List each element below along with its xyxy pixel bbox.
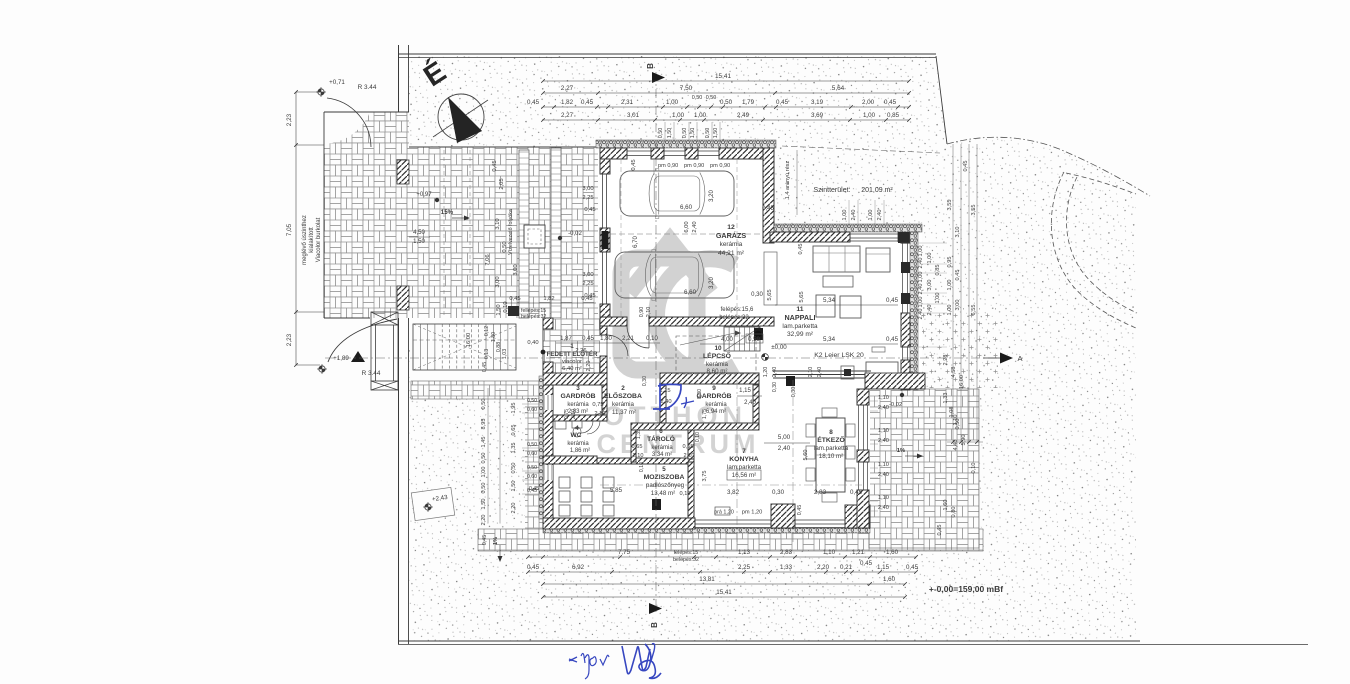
- svg-text:0,90: 0,90: [639, 307, 645, 318]
- svg-text:0,30: 0,30: [772, 489, 785, 496]
- svg-text:kerámia: kerámia: [651, 445, 673, 451]
- svg-text:2,40: 2,40: [660, 399, 671, 405]
- svg-text:2,40: 2,40: [878, 405, 889, 411]
- svg-text:13,81: 13,81: [699, 576, 715, 583]
- svg-text:NAPPALI: NAPPALI: [784, 313, 815, 322]
- svg-text:0,10: 0,10: [639, 462, 645, 472]
- svg-text:3,00: 3,00: [513, 264, 519, 275]
- svg-text:0,45: 0,45: [884, 99, 897, 106]
- svg-text:2,20: 2,20: [586, 361, 592, 372]
- svg-text:1,82: 1,82: [543, 296, 554, 302]
- svg-text:0,30: 0,30: [642, 376, 648, 386]
- svg-text:FEDETT ELŐTÉR: FEDETT ELŐTÉR: [547, 350, 598, 358]
- svg-text:B: B: [650, 622, 659, 628]
- svg-text:1,50: 1,50: [511, 481, 517, 492]
- svg-text:kialakított: kialakított: [309, 227, 315, 253]
- svg-text:15%: 15%: [441, 209, 454, 216]
- svg-text:3,20: 3,20: [709, 277, 715, 289]
- svg-text:1,60: 1,60: [886, 549, 899, 556]
- svg-text:6,60: 6,60: [680, 204, 693, 211]
- svg-text:0,10: 0,10: [971, 463, 977, 474]
- svg-text:0,50: 0,50: [527, 465, 537, 471]
- svg-text:0,45: 0,45: [509, 296, 520, 302]
- svg-text:0,45: 0,45: [762, 206, 774, 212]
- svg-text:0,60: 0,60: [527, 407, 537, 413]
- svg-text:0,45: 0,45: [906, 564, 919, 571]
- svg-text:R 3.44: R 3.44: [362, 370, 381, 377]
- svg-text:1,10: 1,10: [878, 495, 889, 501]
- svg-text:ELŐSZOBA: ELŐSZOBA: [604, 391, 642, 400]
- svg-text:0,80: 0,80: [951, 507, 957, 518]
- svg-text:6,70: 6,70: [633, 236, 639, 248]
- svg-text:LÉPCSŐ: LÉPCSŐ: [703, 351, 731, 360]
- svg-text:2,40: 2,40: [817, 367, 823, 378]
- svg-text:0,60: 0,60: [527, 474, 537, 480]
- svg-text:0,45: 0,45: [482, 362, 488, 372]
- svg-text:1,00: 1,00: [918, 272, 924, 283]
- svg-text:felépés:15,6: felépés:15,6: [721, 307, 754, 313]
- svg-text:2: 2: [621, 385, 625, 392]
- svg-text:2,40: 2,40: [878, 505, 889, 511]
- svg-text:1,33: 1,33: [943, 393, 949, 404]
- svg-text:1,10: 1,10: [823, 549, 836, 556]
- svg-text:1,20: 1,20: [763, 367, 769, 378]
- svg-text:2,40: 2,40: [918, 309, 924, 320]
- svg-text:2,10: 2,10: [684, 453, 695, 459]
- svg-text:0,45: 0,45: [584, 293, 595, 299]
- svg-text:5,60: 5,60: [803, 450, 809, 461]
- svg-text:32,99 m²: 32,99 m²: [787, 331, 814, 338]
- svg-text:6,00: 6,00: [684, 221, 690, 232]
- svg-text:lam.parketta: lam.parketta: [814, 445, 849, 452]
- svg-text:TÁROLÓ: TÁROLÓ: [647, 434, 675, 443]
- svg-text:2,25: 2,25: [738, 564, 751, 571]
- svg-text:12: 12: [727, 224, 735, 231]
- svg-text:5,90: 5,90: [961, 435, 967, 446]
- svg-text:11,37 m²: 11,37 m²: [612, 409, 636, 416]
- svg-text:1,45: 1,45: [481, 437, 487, 448]
- svg-text:1,03: 1,03: [502, 349, 508, 359]
- svg-text:0,12: 0,12: [484, 326, 490, 336]
- svg-text:1%: 1%: [897, 448, 905, 454]
- svg-text:5,65: 5,65: [767, 289, 773, 300]
- svg-text:1,60: 1,60: [883, 576, 896, 583]
- svg-text:1,10: 1,10: [878, 462, 889, 468]
- svg-text:3,55: 3,55: [947, 200, 953, 211]
- svg-text:0,50: 0,50: [527, 442, 537, 448]
- svg-text:0,50: 0,50: [481, 399, 487, 410]
- svg-text:0,45: 0,45: [963, 161, 969, 172]
- svg-text:0,45: 0,45: [798, 244, 804, 255]
- svg-text:-0,02: -0,02: [568, 231, 582, 237]
- svg-text:2,40: 2,40: [778, 445, 791, 452]
- svg-text:4,58: 4,58: [951, 367, 957, 378]
- svg-text:2,40: 2,40: [878, 438, 889, 444]
- svg-text:1,00: 1,00: [918, 246, 924, 257]
- svg-text:0,45: 0,45: [631, 159, 637, 170]
- svg-text:3,00: 3,00: [582, 272, 593, 278]
- svg-text:2,05: 2,05: [499, 178, 505, 189]
- svg-text:0,10: 0,10: [646, 336, 658, 342]
- svg-text:B: B: [646, 63, 655, 69]
- svg-text:1,15: 1,15: [659, 388, 670, 394]
- svg-text:0,50: 0,50: [481, 453, 487, 464]
- svg-text:2,27: 2,27: [561, 85, 574, 92]
- svg-text:2,10: 2,10: [808, 367, 814, 378]
- svg-text:1,15: 1,15: [739, 388, 751, 394]
- svg-text:1,00: 1,00: [927, 253, 933, 264]
- svg-text:0,10: 0,10: [680, 491, 691, 497]
- svg-text:0,30: 0,30: [697, 389, 703, 399]
- svg-text:Vízelvezető folyóka: Vízelvezető folyóka: [508, 209, 514, 255]
- svg-text:0,30: 0,30: [791, 387, 797, 398]
- svg-text:16,56 m²: 16,56 m²: [732, 472, 756, 479]
- svg-text:2,00: 2,00: [862, 99, 875, 106]
- svg-text:+0,97: +0,97: [416, 192, 432, 198]
- svg-text:3,00: 3,00: [582, 186, 593, 192]
- svg-text:0,75: 0,75: [564, 409, 570, 419]
- svg-text:kerámia: kerámia: [567, 402, 589, 408]
- svg-text:A: A: [1017, 354, 1022, 363]
- svg-text:0,50: 0,50: [502, 241, 508, 252]
- svg-text:1,00: 1,00: [947, 280, 953, 291]
- svg-text:0,60: 0,60: [527, 451, 537, 457]
- svg-text:2,10: 2,10: [571, 409, 577, 419]
- svg-text:1,00: 1,00: [694, 112, 707, 119]
- svg-text:6,92: 6,92: [572, 564, 585, 571]
- svg-text:+0,71: +0,71: [329, 79, 345, 86]
- svg-text:1,50: 1,50: [413, 239, 425, 245]
- svg-text:0,85: 0,85: [935, 265, 941, 276]
- svg-text:3,34 m²: 3,34 m²: [652, 452, 672, 458]
- svg-text:44,21 m²: 44,21 m²: [718, 250, 745, 257]
- svg-text:10: 10: [714, 345, 722, 352]
- svg-text:CENTRUM: CENTRUM: [597, 429, 760, 459]
- svg-text:2,23: 2,23: [286, 113, 293, 126]
- svg-text:0,45: 0,45: [850, 489, 863, 496]
- svg-text:6,40 m²: 6,40 m²: [562, 366, 582, 372]
- svg-text:0,30: 0,30: [751, 292, 763, 298]
- svg-text:0,45: 0,45: [492, 160, 498, 171]
- svg-text:0,45: 0,45: [584, 207, 595, 213]
- svg-text:+1,89: +1,89: [333, 355, 349, 362]
- svg-text:meglévő úszinthez: meglévő úszinthez: [302, 215, 308, 265]
- svg-text:5,00: 5,00: [778, 434, 791, 441]
- svg-text:KONYHA: KONYHA: [729, 456, 759, 463]
- svg-text:1,50: 1,50: [667, 128, 673, 139]
- svg-text:3,82: 3,82: [727, 489, 740, 496]
- svg-text:0,59: 0,59: [748, 337, 760, 343]
- svg-text:4,50: 4,50: [413, 230, 425, 236]
- svg-text:6,94 m²: 6,94 m²: [706, 409, 726, 415]
- svg-text:6,55: 6,55: [971, 305, 977, 316]
- svg-text:3,00: 3,00: [495, 276, 501, 287]
- svg-text:kerámia: kerámia: [720, 241, 743, 248]
- svg-text:0,45: 0,45: [527, 564, 540, 571]
- svg-text:16,00: 16,00: [466, 333, 472, 348]
- svg-text:belépés:32: belépés:32: [719, 315, 749, 321]
- svg-text:5,34: 5,34: [823, 336, 836, 343]
- svg-text:2,40: 2,40: [877, 210, 883, 221]
- svg-text:8: 8: [829, 429, 833, 436]
- svg-text:K2 Leier LSK 20: K2 Leier LSK 20: [814, 352, 864, 359]
- svg-text:viacolor: viacolor: [562, 359, 582, 365]
- svg-text:0,45: 0,45: [860, 560, 873, 567]
- svg-text:pm 0,90: pm 0,90: [710, 163, 730, 169]
- svg-text:MOZISZOBA: MOZISZOBA: [644, 474, 685, 481]
- svg-text:3,69: 3,69: [811, 112, 824, 119]
- svg-text:2,40: 2,40: [918, 284, 924, 295]
- svg-text:0,10: 0,10: [695, 432, 701, 442]
- svg-text:201,09 m²: 201,09 m²: [861, 187, 893, 194]
- svg-text:1,10: 1,10: [953, 415, 959, 426]
- svg-text:1,33: 1,33: [780, 564, 793, 571]
- svg-text:felépés:15: felépés:15: [674, 550, 698, 556]
- svg-text:4,00: 4,00: [721, 337, 733, 343]
- svg-text:9: 9: [712, 385, 716, 392]
- svg-text:Szintterület:: Szintterület:: [814, 187, 851, 194]
- svg-text:2,20: 2,20: [817, 564, 830, 571]
- svg-text:1,13: 1,13: [738, 549, 751, 556]
- svg-text:+-0,00=159,00 mBf: +-0,00=159,00 mBf: [929, 584, 1003, 594]
- svg-text:2,28: 2,28: [943, 355, 949, 366]
- svg-text:1,21: 1,21: [852, 549, 865, 556]
- svg-text:2,21: 2,21: [622, 336, 634, 342]
- svg-text:2,25: 2,25: [582, 195, 593, 201]
- svg-text:0,45: 0,45: [582, 336, 594, 342]
- svg-text:kerámia: kerámia: [705, 402, 727, 408]
- svg-text:padlószőnyeg: padlószőnyeg: [646, 482, 685, 489]
- svg-text:2,10: 2,10: [646, 307, 652, 318]
- svg-text:3,01: 3,01: [627, 112, 640, 119]
- svg-text:0,95: 0,95: [947, 257, 953, 268]
- svg-text:0,45: 0,45: [776, 99, 789, 106]
- svg-text:5,64: 5,64: [832, 85, 845, 92]
- svg-text:0,50: 0,50: [527, 398, 537, 404]
- svg-text:7,50: 7,50: [680, 85, 693, 92]
- svg-text:WC: WC: [571, 432, 582, 439]
- svg-text:5,34: 5,34: [823, 297, 836, 304]
- svg-text:3,10: 3,10: [495, 218, 501, 229]
- svg-text:1,00: 1,00: [947, 305, 953, 316]
- svg-text:2,40: 2,40: [918, 258, 924, 269]
- svg-text:15,41: 15,41: [715, 73, 731, 80]
- svg-text:0,85: 0,85: [887, 112, 900, 119]
- svg-text:1,60: 1,60: [943, 500, 949, 511]
- svg-text:2,23: 2,23: [286, 333, 293, 346]
- svg-text:2,49: 2,49: [737, 112, 750, 119]
- svg-text:2,40: 2,40: [772, 367, 778, 378]
- svg-text:2,10: 2,10: [633, 453, 644, 459]
- svg-text:1,00: 1,00: [842, 210, 848, 221]
- svg-text:1,00: 1,00: [935, 293, 941, 304]
- svg-text:2,40: 2,40: [851, 210, 857, 221]
- svg-text:16,00: 16,00: [959, 375, 965, 389]
- svg-text:1,87: 1,87: [560, 336, 572, 342]
- svg-text:2,25: 2,25: [582, 281, 593, 287]
- svg-text:1,00: 1,00: [863, 112, 876, 119]
- svg-text:0,45: 0,45: [937, 525, 943, 536]
- svg-text:ÉTKEZŐ: ÉTKEZŐ: [817, 435, 845, 444]
- svg-text:pm 1,20: pm 1,20: [742, 510, 763, 516]
- svg-text:0,45: 0,45: [886, 297, 899, 304]
- svg-text:2,83: 2,83: [780, 549, 793, 556]
- svg-text:8,95: 8,95: [481, 419, 487, 430]
- svg-text:4,40: 4,40: [953, 440, 959, 451]
- svg-text:1,95: 1,95: [511, 403, 517, 414]
- svg-text:8,60 m²: 8,60 m²: [707, 368, 728, 375]
- svg-text:1,80: 1,80: [491, 332, 497, 342]
- svg-text:1,50: 1,50: [713, 128, 719, 139]
- svg-text:0,50: 0,50: [706, 95, 717, 101]
- svg-text:0,13: 0,13: [484, 349, 490, 359]
- svg-text:2,20: 2,20: [511, 503, 517, 514]
- svg-text:2,40: 2,40: [927, 305, 933, 316]
- svg-text:kerámia: kerámia: [567, 441, 589, 447]
- svg-text:1,86 m²: 1,86 m²: [570, 448, 590, 454]
- svg-text:0,65: 0,65: [511, 425, 517, 436]
- svg-text:3,00: 3,00: [927, 280, 933, 291]
- svg-text:3,55: 3,55: [971, 205, 977, 216]
- svg-text:1,10: 1,10: [878, 395, 889, 401]
- svg-text:0,50: 0,50: [720, 99, 733, 106]
- svg-text:2,31: 2,31: [621, 99, 634, 106]
- svg-text:0,45: 0,45: [955, 270, 961, 281]
- svg-text:±0,00: ±0,00: [771, 344, 787, 351]
- svg-text:0,45: 0,45: [581, 99, 594, 106]
- svg-text:0,65: 0,65: [632, 444, 643, 450]
- svg-text:pm 0,90: pm 0,90: [658, 163, 678, 169]
- svg-text:0,21: 0,21: [840, 564, 853, 571]
- svg-text:1,35: 1,35: [636, 429, 642, 439]
- svg-text:7,05: 7,05: [286, 223, 293, 236]
- svg-text:Viacolor burkolat: Viacolor burkolat: [316, 217, 322, 262]
- svg-text:0,50: 0,50: [692, 95, 703, 101]
- svg-text:-0,02: -0,02: [889, 402, 902, 408]
- svg-text:GARDRÓB: GARDRÓB: [560, 391, 595, 400]
- svg-text:belépés:32: belépés:32: [673, 557, 699, 563]
- svg-text:0,65: 0,65: [683, 444, 694, 450]
- svg-text:1,82: 1,82: [561, 99, 574, 106]
- svg-text:2,83: 2,83: [814, 489, 827, 496]
- svg-text:1,50: 1,50: [481, 499, 487, 510]
- svg-text:7,75: 7,75: [618, 549, 631, 556]
- svg-text:3: 3: [576, 385, 580, 392]
- svg-text:1,50: 1,50: [690, 128, 696, 139]
- svg-text:1,10: 1,10: [878, 428, 889, 434]
- svg-text:3,10: 3,10: [955, 227, 961, 238]
- svg-text:0,45: 0,45: [529, 486, 539, 492]
- svg-text:3,19: 3,19: [811, 99, 824, 106]
- svg-text:lam.parketta: lam.parketta: [782, 323, 818, 330]
- svg-text:6,60: 6,60: [684, 289, 697, 296]
- svg-text:2,40: 2,40: [692, 221, 698, 232]
- svg-text:R 3.44: R 3.44: [358, 84, 377, 91]
- svg-text:3,00: 3,00: [955, 300, 961, 311]
- svg-text:kerámia: kerámia: [706, 361, 729, 368]
- svg-text:0,50: 0,50: [511, 463, 517, 474]
- svg-text:0,45: 0,45: [527, 99, 540, 106]
- svg-text:15,41: 15,41: [716, 589, 732, 596]
- svg-text:2,40: 2,40: [878, 472, 889, 478]
- svg-text:1%: 1%: [493, 537, 499, 545]
- svg-text:13,48 m²: 13,48 m²: [651, 490, 675, 497]
- svg-text:0,30: 0,30: [772, 382, 778, 392]
- svg-text:0,45: 0,45: [797, 505, 803, 516]
- svg-text:1,35: 1,35: [511, 443, 517, 454]
- svg-text:1,15: 1,15: [877, 564, 890, 571]
- svg-text:1,75: 1,75: [702, 409, 708, 419]
- svg-text:prá 1,20: prá 1,20: [714, 510, 734, 516]
- svg-text:3,20: 3,20: [709, 190, 715, 202]
- svg-text:0,45: 0,45: [482, 535, 488, 546]
- svg-text:5: 5: [662, 466, 666, 473]
- svg-text:1,4 arányú rész: 1,4 arányú rész: [785, 161, 791, 200]
- svg-text:2,27: 2,27: [561, 112, 574, 119]
- svg-text:3,75: 3,75: [702, 471, 708, 482]
- svg-text:0,50: 0,50: [682, 128, 688, 139]
- svg-text:18,10 m²: 18,10 m²: [819, 453, 843, 460]
- svg-text:0,50: 0,50: [705, 128, 711, 139]
- svg-text:1,00: 1,00: [481, 467, 487, 478]
- svg-text:0,50: 0,50: [658, 128, 664, 139]
- svg-text:6: 6: [659, 428, 663, 435]
- svg-text:0,40: 0,40: [527, 340, 538, 346]
- svg-text:1,50: 1,50: [496, 304, 502, 315]
- svg-text:0,75: 0,75: [592, 402, 603, 408]
- svg-text:1,00: 1,00: [918, 297, 924, 308]
- svg-text:pm 0,90: pm 0,90: [684, 163, 704, 169]
- svg-text:0,45: 0,45: [886, 336, 899, 343]
- svg-text:4: 4: [575, 425, 579, 432]
- svg-text:1,80: 1,80: [600, 336, 612, 342]
- svg-text:1,00: 1,00: [868, 210, 874, 221]
- svg-text:0,50: 0,50: [481, 483, 487, 494]
- svg-text:2,20: 2,20: [481, 515, 487, 526]
- svg-text:5,65: 5,65: [799, 291, 805, 302]
- svg-text:7: 7: [742, 448, 746, 455]
- svg-text:1,00: 1,00: [672, 112, 685, 119]
- svg-text:1,79: 1,79: [742, 99, 755, 106]
- svg-text:5,85: 5,85: [610, 487, 623, 494]
- svg-text:kerámia: kerámia: [612, 401, 635, 408]
- svg-text:7,06: 7,06: [485, 254, 491, 265]
- svg-text:GARÁZS: GARÁZS: [716, 231, 747, 240]
- svg-text:11: 11: [796, 306, 803, 313]
- svg-text:2,10: 2,10: [594, 411, 605, 417]
- svg-text:1,00: 1,00: [666, 99, 679, 106]
- svg-text:2,40: 2,40: [744, 400, 756, 406]
